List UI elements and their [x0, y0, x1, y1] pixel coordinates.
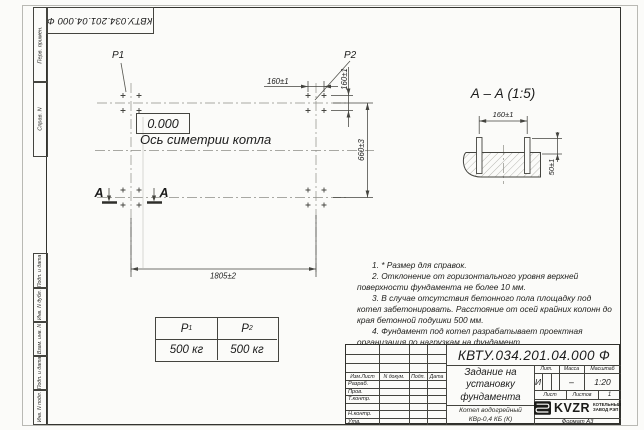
cut-letter-a-left: А	[93, 186, 103, 200]
section-bolt-left	[477, 138, 483, 174]
mass-header: Масса	[559, 366, 584, 372]
dim-bolt-spacing-x-text: 160±1	[267, 77, 289, 86]
doc-title: Задание на установку фундамента	[447, 366, 534, 405]
dim-row-spacing-text: 660±3	[357, 139, 366, 161]
note-2: 2. Отклонение от горизонтального уровня …	[357, 271, 617, 293]
dim-bolt-spacing-y-text: 160±1	[340, 68, 349, 90]
note-3: 3. В случае отсутствия бетонного пола пл…	[357, 293, 617, 326]
drawing-sheet: КВТУ.034.201.04.000 Ф Перв. примен. Спра…	[0, 0, 644, 430]
rev-header-izm-list: Изм.Лист	[346, 374, 379, 380]
p2-base: P	[241, 323, 249, 335]
doc-title-line2: установку	[466, 379, 515, 391]
kvzr-coil-icon	[534, 401, 551, 415]
loads-table: P1 P2 500 кг 500 кг	[155, 317, 279, 362]
section-dim-height-text: 50±1	[547, 159, 556, 176]
dim-length	[131, 215, 316, 277]
sheet-label: Лист	[534, 392, 566, 398]
p1-sub: 1	[188, 325, 192, 332]
scale-value: 1:20	[584, 373, 621, 390]
notes-block: 1. * Размер для справок. 2. Отклонение о…	[357, 260, 617, 348]
p1-leader	[121, 63, 126, 92]
product-line2: КВр-0,4 КБ (К)	[469, 416, 512, 425]
level-mark: 0.000	[147, 117, 178, 131]
loads-value-p1: 500 кг	[156, 340, 218, 360]
p2-label: P2	[344, 50, 357, 61]
row-label-razrab: Разраб.	[346, 381, 368, 387]
rev-header-podp: Подп.	[409, 374, 427, 380]
title-block: КВТУ.034.201.04.000 Ф Задание на установ…	[345, 344, 620, 424]
section-bolt-right	[525, 138, 531, 174]
sheets-label: Листов	[566, 392, 598, 398]
p2-sub: 2	[249, 325, 253, 332]
row-label-tkontr: Т.контр.	[346, 396, 371, 402]
centerlines	[95, 83, 504, 272]
note-1: 1. * Размер для справок.	[357, 260, 617, 271]
dim-length-text: 1805±2	[210, 272, 237, 281]
lit-value: И	[534, 373, 542, 390]
format-label: Формат А3	[534, 418, 621, 425]
row-label-nkontr: Н.контр.	[346, 411, 372, 417]
loads-header-p1: P1	[156, 318, 218, 340]
section-dim-width-text: 160±1	[493, 110, 514, 119]
level-mark-box: 0.000	[136, 113, 190, 134]
sheets-value: 1	[598, 392, 621, 398]
titleblock-designation: КВТУ.034.201.04.000 Ф	[447, 345, 621, 365]
doc-title-line1: Задание на	[464, 367, 516, 379]
product-name: Котел водогрейный КВр-0,4 КБ (К)	[447, 406, 534, 425]
loads-header-p2: P2	[217, 318, 277, 340]
logo-cell: KVZR КОТЕЛЬНЫЙ ЗАВОД РЭП	[534, 399, 621, 419]
mass-value: –	[559, 373, 584, 390]
rev-header-ndokum: N докум.	[379, 374, 409, 380]
row-label-prov: Пров.	[346, 389, 363, 395]
lit-header: Лит.	[534, 366, 559, 372]
kvzr-logo-text: KVZR	[554, 401, 590, 415]
product-line1: Котел водогрейный	[459, 407, 522, 416]
section-title: А – А (1:5)	[470, 86, 536, 101]
loads-value-p2: 500 кг	[217, 340, 277, 360]
row-label-utv: Утв.	[346, 419, 361, 425]
logo-sub2: ЗАВОД РЭП	[593, 408, 621, 413]
scale-header: Масштаб	[584, 366, 621, 372]
axis-label: Ось симетрии котла	[140, 132, 271, 147]
rev-header-data: Дата	[427, 374, 446, 380]
cut-letter-a-right: А	[158, 186, 168, 200]
p1-base: P	[181, 323, 189, 335]
doc-title-line3: фундамента	[460, 392, 520, 404]
p1-label: P1	[112, 50, 124, 61]
